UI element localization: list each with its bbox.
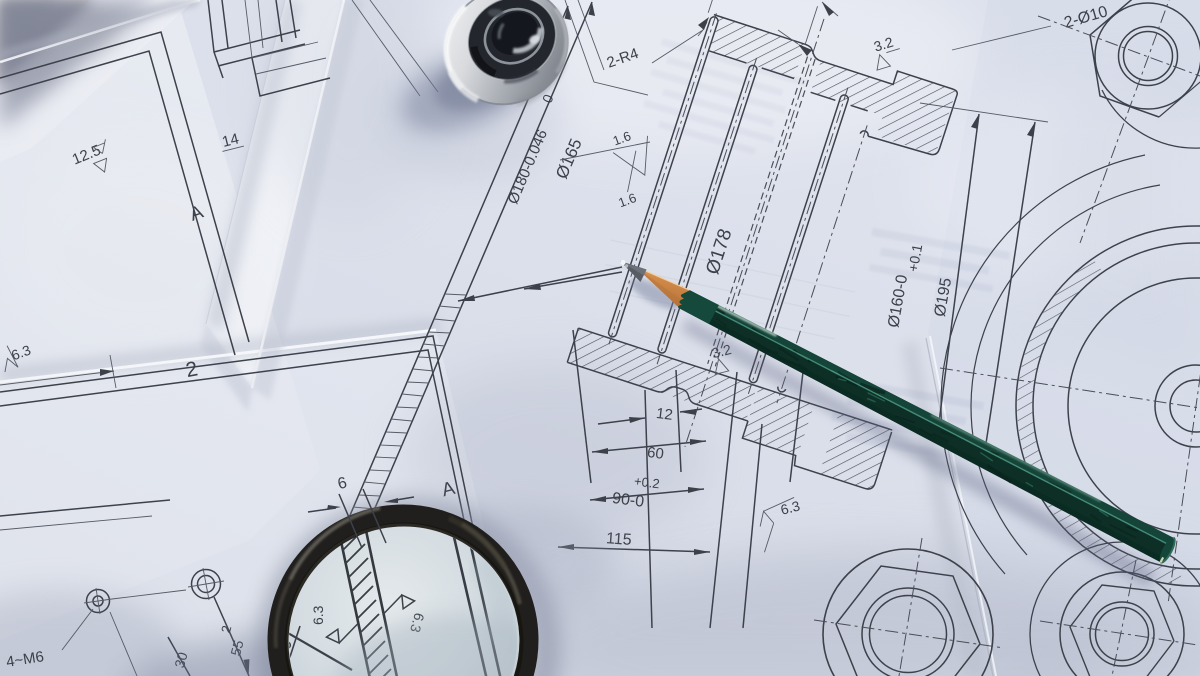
svg-text:12: 12	[655, 405, 674, 424]
svg-text:60: 60	[646, 444, 665, 463]
svg-text:6.3: 6.3	[310, 605, 326, 625]
svg-text:+0.2: +0.2	[633, 473, 660, 491]
